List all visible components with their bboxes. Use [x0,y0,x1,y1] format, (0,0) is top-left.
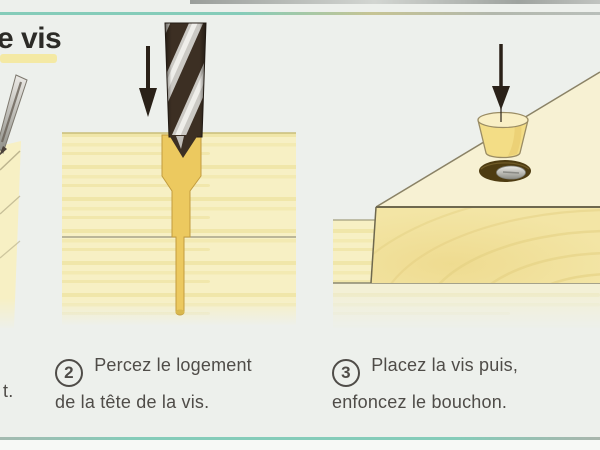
panel2-illustration [62,23,296,326]
panel3-wood-plug [478,113,528,158]
step2-caption-line2: de la tête de la vis. [55,392,209,412]
panel1-illustration [0,75,27,330]
panel3-down-arrow-icon [492,44,510,122]
step1-caption-text: t. [3,381,13,401]
page-title-fragment: e vis [0,22,61,56]
step3-caption-line2: enfoncez le bouchon. [332,392,507,412]
step3-caption: 3 Placez la vis puis, enfoncez le boucho… [332,350,598,417]
step2-caption-line1: Percez le logement [94,355,252,375]
book-page: e vis [0,0,600,450]
panel2-down-arrow-icon [139,46,157,117]
step3-number-badge: 3 [332,359,360,387]
panel3-screw-head [497,166,526,179]
step2-number-badge: 2 [55,359,83,387]
step2-caption: 2 Percez le logement de la tête de la vi… [55,350,317,417]
panel3-screw-hole [479,160,531,182]
step1-caption-fragment: t. [3,376,13,406]
step3-caption-line1: Placez la vis puis, [371,355,518,375]
panel1-wood-fragment [0,141,24,330]
